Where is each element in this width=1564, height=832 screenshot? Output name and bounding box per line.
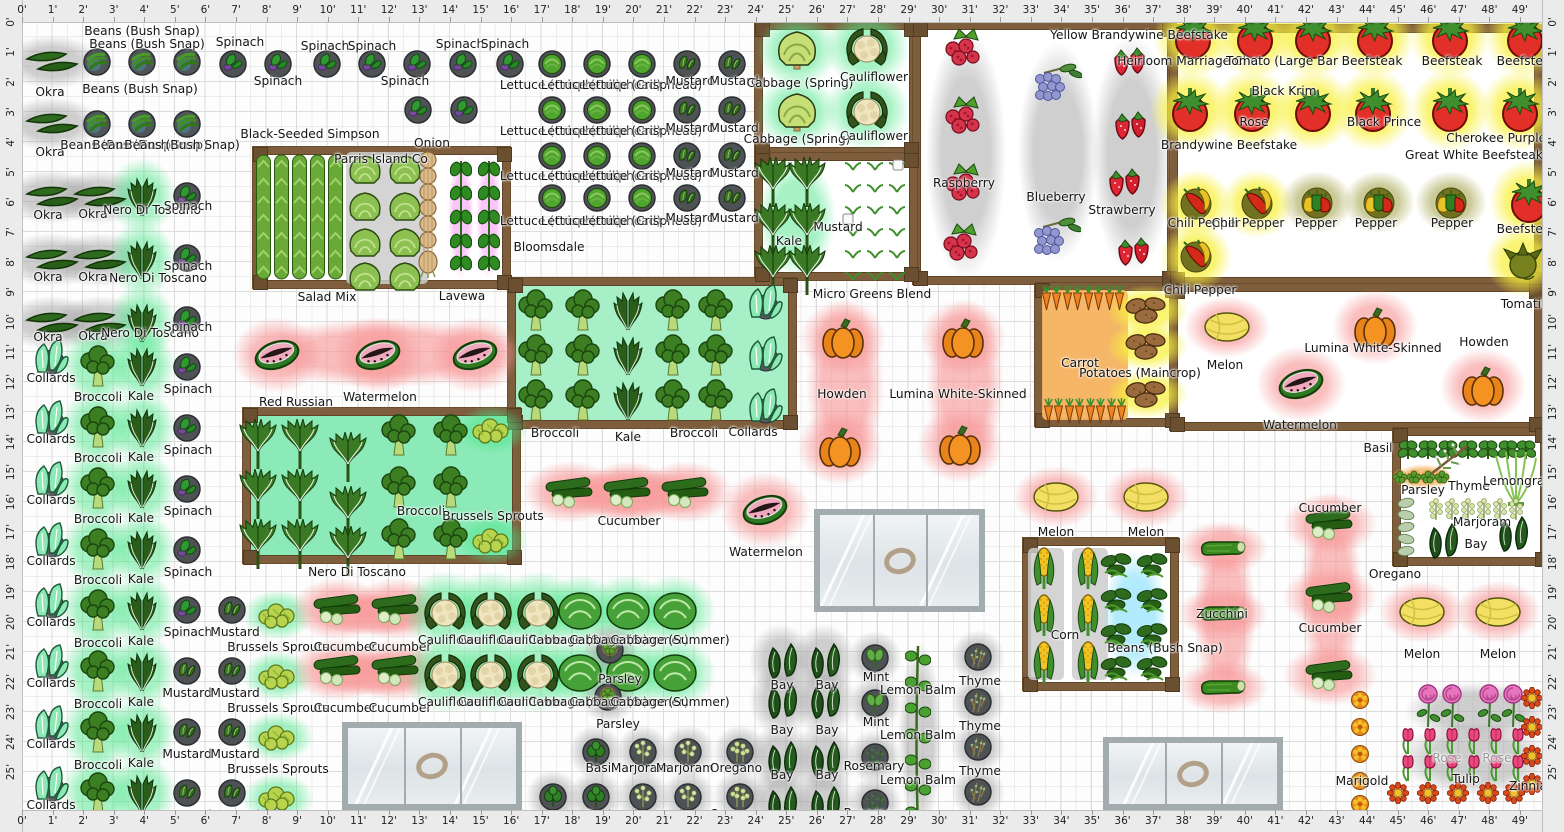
cold-frame[interactable] xyxy=(814,509,985,612)
ruler-bottom-label: 38' xyxy=(1176,815,1192,827)
pixkale-icon[interactable] xyxy=(326,432,370,484)
pixkale-icon[interactable] xyxy=(278,469,322,521)
carrot-icon[interactable] xyxy=(1095,398,1106,424)
broccoli-icon[interactable] xyxy=(652,378,692,422)
collards-icon[interactable] xyxy=(744,331,784,373)
ruler-left-label: 25' xyxy=(5,764,17,780)
beanplant-icon[interactable] xyxy=(1135,654,1169,682)
broccoli-icon[interactable] xyxy=(378,465,418,509)
plant-label: Bay xyxy=(770,678,793,692)
plant-label: Chili Pepper xyxy=(1164,283,1237,297)
plant-label: Spinach xyxy=(164,320,212,334)
cauliflower-icon[interactable] xyxy=(514,589,562,633)
pepper-icon[interactable] xyxy=(1359,185,1399,219)
kalev-icon[interactable] xyxy=(123,589,161,631)
zinnia-icon[interactable] xyxy=(1417,782,1439,804)
brussels-icon[interactable] xyxy=(472,526,512,554)
romaine-icon[interactable] xyxy=(347,261,383,293)
cucpair-icon[interactable] xyxy=(370,592,422,626)
cabbageSum-icon[interactable] xyxy=(605,591,651,631)
ruler-left-label: 14' xyxy=(5,434,17,450)
lettuce-icon[interactable] xyxy=(537,183,567,213)
plant-label: Thyme xyxy=(959,764,1001,778)
corn-icon[interactable] xyxy=(1075,639,1101,685)
marigold-icon[interactable] xyxy=(1350,690,1370,710)
pixkale-icon[interactable] xyxy=(236,419,280,471)
cold-frame[interactable] xyxy=(1103,737,1283,810)
broccoli-icon[interactable] xyxy=(77,588,117,632)
zinnia-icon[interactable] xyxy=(1521,745,1543,767)
romaine-icon[interactable] xyxy=(347,227,383,259)
cauliflower-icon[interactable] xyxy=(514,651,562,695)
kalev-icon[interactable] xyxy=(123,528,161,570)
ruler-bottom-label: 18' xyxy=(564,815,580,827)
plant-label: Cabbage (Summer) xyxy=(610,695,729,709)
brussels-icon[interactable] xyxy=(258,723,298,751)
ruler-bottom-label: 29' xyxy=(900,815,916,827)
plant-label: Cabbage (Summer) xyxy=(610,633,729,647)
lettuce-icon[interactable] xyxy=(537,141,567,171)
ruler-top-label: 18' xyxy=(564,4,580,16)
kalev-icon[interactable] xyxy=(609,289,647,331)
ruler-top-label: 26' xyxy=(809,4,825,16)
carrot-icon[interactable] xyxy=(1053,398,1064,424)
plant-label: Broccoli xyxy=(74,512,122,526)
collards-icon[interactable] xyxy=(30,456,70,498)
carrot-icon[interactable] xyxy=(1051,285,1062,311)
melon-icon[interactable] xyxy=(1203,310,1251,344)
pixkale-icon[interactable] xyxy=(236,469,280,521)
ruler-bottom-label: 24' xyxy=(748,815,764,827)
broccoli-icon[interactable] xyxy=(695,378,735,422)
pumpkin-icon[interactable] xyxy=(936,424,984,466)
broccoli-icon[interactable] xyxy=(562,288,602,332)
plant-label: Blueberry xyxy=(1026,190,1085,204)
kalev-icon[interactable] xyxy=(609,379,647,421)
spinach-icon[interactable] xyxy=(312,49,342,79)
cabbageSum-icon[interactable] xyxy=(557,591,603,631)
collards-icon[interactable] xyxy=(30,639,70,681)
spinach-icon[interactable] xyxy=(495,49,525,79)
ruler-bottom-label: 9' xyxy=(292,815,302,827)
thyme-icon[interactable] xyxy=(963,777,993,807)
plant-label: Melon xyxy=(1038,525,1075,539)
ruler-left-label: 12' xyxy=(5,374,17,390)
ruler-bottom-label: 27' xyxy=(839,815,855,827)
broccoli-icon[interactable] xyxy=(515,333,555,377)
plant-label: Watermelon xyxy=(729,545,803,559)
potato-icon[interactable] xyxy=(1124,380,1170,408)
watermelon-icon[interactable] xyxy=(740,489,790,531)
basil-icon[interactable] xyxy=(538,782,568,812)
potato-icon[interactable] xyxy=(1124,296,1170,324)
tomato-icon[interactable] xyxy=(1168,87,1212,133)
cucpair-icon[interactable] xyxy=(370,653,422,687)
spinach-icon[interactable] xyxy=(448,49,478,79)
mustard-icon[interactable] xyxy=(172,717,202,747)
ruler-top-label: 37' xyxy=(1145,4,1161,16)
beans-icon[interactable] xyxy=(127,109,157,139)
spinach-icon[interactable] xyxy=(172,413,202,443)
blueberry-icon[interactable] xyxy=(1030,57,1082,105)
brussels-icon[interactable] xyxy=(472,416,512,444)
cauliflower-icon[interactable] xyxy=(467,651,515,695)
ruler-top-label: 28' xyxy=(870,4,886,16)
ruler-top-label: 0' xyxy=(17,4,27,16)
romaine-icon[interactable] xyxy=(347,191,383,223)
plant-label: Kale xyxy=(128,634,154,648)
spinach-icon[interactable] xyxy=(218,49,248,79)
plant-label: Lemon Balm xyxy=(880,728,956,742)
watermelon-icon[interactable] xyxy=(1276,363,1326,405)
zucchini-icon[interactable] xyxy=(1198,672,1248,702)
ruler-bottom-label: 16' xyxy=(503,815,519,827)
cauliflower-icon[interactable] xyxy=(467,589,515,633)
broccoli-icon[interactable] xyxy=(430,517,470,561)
onioncol-icon[interactable] xyxy=(415,150,441,278)
broccoli-icon[interactable] xyxy=(77,771,117,815)
beans-icon[interactable] xyxy=(127,47,157,77)
watermelon-icon[interactable] xyxy=(252,334,302,376)
cabbageSp-icon[interactable] xyxy=(774,29,820,71)
broccoli-icon[interactable] xyxy=(77,466,117,510)
spincol-icon[interactable] xyxy=(478,157,500,275)
saladcol-icon[interactable] xyxy=(291,153,308,281)
pixkale-icon[interactable] xyxy=(278,519,322,571)
cucpair-icon[interactable] xyxy=(660,475,712,509)
melon-icon[interactable] xyxy=(1122,480,1170,514)
ruler-left-label: 23' xyxy=(5,704,17,720)
ruler-bottom-label: 17' xyxy=(534,815,550,827)
broccoli-icon[interactable] xyxy=(515,288,555,332)
plant-label: Cucumber xyxy=(314,640,377,654)
strawberry-icon[interactable] xyxy=(1113,236,1155,270)
beans-icon[interactable] xyxy=(82,47,112,77)
pixkale-icon[interactable] xyxy=(278,419,322,471)
spinach-icon[interactable] xyxy=(172,352,202,382)
bay-icon[interactable] xyxy=(763,640,799,680)
potato-icon[interactable] xyxy=(1124,332,1170,360)
plant-label: Thyme xyxy=(959,674,1001,688)
strawberry-icon[interactable] xyxy=(1104,167,1146,201)
mustard-icon[interactable] xyxy=(217,778,247,808)
marigold-icon[interactable] xyxy=(1350,744,1370,764)
kalev-icon[interactable] xyxy=(123,650,161,692)
broccoli-icon[interactable] xyxy=(77,649,117,693)
broccoli-icon[interactable] xyxy=(695,288,735,332)
ruler-top-label: 23' xyxy=(717,4,733,16)
beanplant-icon[interactable] xyxy=(1135,551,1169,579)
mustard-icon[interactable] xyxy=(717,183,747,213)
mustard-icon[interactable] xyxy=(172,778,202,808)
lettuce-icon[interactable] xyxy=(582,183,612,213)
pane-divider xyxy=(1165,743,1167,804)
pixkale-icon[interactable] xyxy=(236,519,280,571)
thyme-icon[interactable] xyxy=(963,687,993,717)
spinach-icon[interactable] xyxy=(172,474,202,504)
raspberry-icon[interactable] xyxy=(943,27,987,67)
zinnia-icon[interactable] xyxy=(1521,687,1543,709)
lettuce-icon[interactable] xyxy=(537,49,567,79)
mustard-icon[interactable] xyxy=(217,656,247,686)
broccoli-icon[interactable] xyxy=(378,517,418,561)
thymesprig-icon[interactable] xyxy=(1427,438,1473,478)
plant-label: Spinach xyxy=(164,259,212,273)
ruler-right-label: 11' xyxy=(1547,344,1559,360)
cauliflower-icon[interactable] xyxy=(421,589,469,633)
collards-icon[interactable] xyxy=(744,383,784,425)
carrot-icon[interactable] xyxy=(1093,285,1104,311)
tomato-icon[interactable] xyxy=(1498,87,1542,133)
broccoli-icon[interactable] xyxy=(77,527,117,571)
plant-label: Chili Pepper xyxy=(1212,216,1285,230)
spinach-icon[interactable] xyxy=(449,95,479,125)
plant-label: Oregano xyxy=(1369,567,1421,581)
strawberry-icon[interactable] xyxy=(1110,110,1152,144)
pumpkin-icon[interactable] xyxy=(1459,365,1507,407)
broccoli-icon[interactable] xyxy=(77,344,117,388)
tomatillo-icon[interactable] xyxy=(1502,241,1544,281)
collards-icon[interactable] xyxy=(30,700,70,742)
ruler-top-label: 31' xyxy=(962,4,978,16)
broccoli-icon[interactable] xyxy=(652,288,692,332)
plant-label: Lumina White-Skinned xyxy=(1304,341,1441,355)
mustard-icon[interactable] xyxy=(217,595,247,625)
ruler-right-label: 14' xyxy=(1547,434,1559,450)
cucpair-icon[interactable] xyxy=(1304,658,1356,692)
plant-label: Lemon Balm xyxy=(880,773,956,787)
collards-icon[interactable] xyxy=(30,517,70,559)
ruler-top-label: 15' xyxy=(472,4,488,16)
lettuce-icon[interactable] xyxy=(627,95,657,125)
broccoli-icon[interactable] xyxy=(378,413,418,457)
raspberry-icon[interactable] xyxy=(943,95,987,135)
cabbageSum-icon[interactable] xyxy=(652,653,698,693)
brussels-icon[interactable] xyxy=(258,601,298,629)
lettuce-icon[interactable] xyxy=(582,49,612,79)
ruler-top-label: 49' xyxy=(1512,4,1528,16)
ruler-bottom-label: 20' xyxy=(625,815,641,827)
okra-icon[interactable] xyxy=(24,47,80,77)
ruler-bottom-label: 47' xyxy=(1451,815,1467,827)
saladcol-icon[interactable] xyxy=(327,153,344,281)
ruler-left-label: 16' xyxy=(5,494,17,510)
ruler-bottom-label: 22' xyxy=(686,815,702,827)
collards-icon[interactable] xyxy=(30,578,70,620)
pane-divider xyxy=(873,515,875,606)
basilplant-icon[interactable] xyxy=(1398,437,1418,461)
saladcol-icon[interactable] xyxy=(273,153,290,281)
carrot-icon[interactable] xyxy=(1114,285,1125,311)
collards-icon[interactable] xyxy=(30,395,70,437)
ruler-left-label: 9' xyxy=(5,287,17,297)
beanplant-icon[interactable] xyxy=(1099,586,1133,614)
melon-icon[interactable] xyxy=(1474,595,1522,629)
pepper-icon[interactable] xyxy=(1431,185,1471,219)
ruler-bottom-label: 44' xyxy=(1359,815,1375,827)
cabbageSum-icon[interactable] xyxy=(652,591,698,631)
saladcol-icon[interactable] xyxy=(255,153,272,281)
pixkale-icon[interactable] xyxy=(785,157,829,209)
thyme-icon[interactable] xyxy=(963,732,993,762)
ruler-bottom-label: 3' xyxy=(109,815,119,827)
beanplant-icon[interactable] xyxy=(1099,654,1133,682)
chili-icon[interactable] xyxy=(1176,238,1216,276)
okra-icon[interactable] xyxy=(24,109,80,139)
ruler-bottom-label: 49' xyxy=(1512,815,1528,827)
ruler-right-label: 9' xyxy=(1547,287,1559,297)
lettuce-icon[interactable] xyxy=(582,95,612,125)
mustard-icon[interactable] xyxy=(672,183,702,213)
ruler-top-label: 33' xyxy=(1023,4,1039,16)
tomato-icon[interactable] xyxy=(1428,87,1472,133)
cauliflower-icon[interactable] xyxy=(421,651,469,695)
plant-label: Parris Island Co xyxy=(334,152,428,166)
lettuce-icon[interactable] xyxy=(537,95,567,125)
watermelon-icon[interactable] xyxy=(353,334,403,376)
pumpkin-icon[interactable] xyxy=(816,426,864,468)
ruler-left-label: 13' xyxy=(5,404,17,420)
corn-icon[interactable] xyxy=(1031,639,1057,685)
collards-icon[interactable] xyxy=(744,279,784,321)
ruler-bottom-label: 40' xyxy=(1237,815,1253,827)
mustard-icon[interactable] xyxy=(172,656,202,686)
raspberry-icon[interactable] xyxy=(941,222,985,262)
plant-label: Okra xyxy=(78,270,107,284)
cold-frame[interactable] xyxy=(342,722,522,810)
spinach-icon[interactable] xyxy=(172,535,202,565)
blueberry-icon[interactable] xyxy=(1029,211,1081,259)
lettuce-icon[interactable] xyxy=(627,49,657,79)
broccoli-icon[interactable] xyxy=(562,378,602,422)
pumpkin-icon[interactable] xyxy=(939,317,987,359)
plant-label: Spinach xyxy=(348,39,396,53)
ruler-top-label: 4' xyxy=(139,4,149,16)
ruler-right-label: 2' xyxy=(1547,77,1559,87)
melon-icon[interactable] xyxy=(1398,595,1446,629)
ruler-bottom-label: 0' xyxy=(17,815,27,827)
spinach-icon[interactable] xyxy=(172,595,202,625)
plant-label: Melon xyxy=(1128,525,1165,539)
carrot-icon[interactable] xyxy=(1072,285,1083,311)
ruler-bottom-label: 11' xyxy=(350,815,366,827)
kalev-icon[interactable] xyxy=(123,711,161,753)
kalev-icon[interactable] xyxy=(123,772,161,814)
broccoli-icon[interactable] xyxy=(77,710,117,754)
zinnia-icon[interactable] xyxy=(1387,782,1409,804)
plant-label: Mustard xyxy=(162,686,211,700)
brussels-icon[interactable] xyxy=(258,662,298,690)
rose-icon[interactable] xyxy=(1438,683,1466,727)
zinnia-icon[interactable] xyxy=(1477,782,1499,804)
brussels-icon[interactable] xyxy=(258,784,298,812)
spincol-icon[interactable] xyxy=(450,157,472,275)
ruler-bottom-label: 12' xyxy=(381,815,397,827)
mint-icon[interactable] xyxy=(860,643,890,673)
ruler-top-label: 12' xyxy=(381,4,397,16)
corn-icon[interactable] xyxy=(1031,545,1057,591)
plant-label: Okra xyxy=(35,85,64,99)
plant-label: Melon xyxy=(1480,647,1517,661)
plant-label: Mustard xyxy=(813,220,862,234)
saladcol-icon[interactable] xyxy=(309,153,326,281)
cucpair-icon[interactable] xyxy=(312,653,364,687)
ruler-top-label: 19' xyxy=(595,4,611,16)
spinach-icon[interactable] xyxy=(403,95,433,125)
ruler-left-label: 24' xyxy=(5,734,17,750)
ruler-top-label: 21' xyxy=(656,4,672,16)
ruler-top-label: 45' xyxy=(1390,4,1406,16)
beanplant-icon[interactable] xyxy=(1135,586,1169,614)
kalev-icon[interactable] xyxy=(123,406,161,448)
broccoli-icon[interactable] xyxy=(77,405,117,449)
marjsprig-icon[interactable] xyxy=(1428,498,1444,522)
carrot-icon[interactable] xyxy=(1074,398,1085,424)
broccoli-icon[interactable] xyxy=(430,413,470,457)
ruler-right-label: 7' xyxy=(1547,227,1559,237)
melon-icon[interactable] xyxy=(1032,480,1080,514)
mustard-icon[interactable] xyxy=(217,717,247,747)
cucpair-icon[interactable] xyxy=(544,475,596,509)
broccoli-icon[interactable] xyxy=(695,333,735,377)
beans-icon[interactable] xyxy=(82,109,112,139)
broccoli-icon[interactable] xyxy=(430,465,470,509)
plant-label: Cucumber xyxy=(1299,621,1362,635)
ruler-top-label: 42' xyxy=(1298,4,1314,16)
pepper-icon[interactable] xyxy=(1297,185,1337,219)
collards-icon[interactable] xyxy=(30,761,70,803)
pumpkin-icon[interactable] xyxy=(819,317,867,359)
pane-divider xyxy=(404,728,406,804)
ruler-top-label: 9' xyxy=(292,4,302,16)
broccoli-icon[interactable] xyxy=(652,333,692,377)
lettuce-icon[interactable] xyxy=(627,141,657,171)
lettuce-icon[interactable] xyxy=(627,183,657,213)
ruler-bottom-label: 28' xyxy=(870,815,886,827)
beans-icon[interactable] xyxy=(172,47,202,77)
zucchini-icon[interactable] xyxy=(1198,533,1248,563)
plant-label: Oregano xyxy=(710,761,762,775)
cucpair-icon[interactable] xyxy=(1304,580,1356,614)
beanplant-icon[interactable] xyxy=(1099,551,1133,579)
kalev-icon[interactable] xyxy=(123,467,161,509)
kalev-icon[interactable] xyxy=(609,334,647,376)
plant-label: Spinach xyxy=(216,35,264,49)
cauliflower-icon[interactable] xyxy=(843,25,891,69)
sagecol-icon[interactable] xyxy=(1395,495,1417,557)
broccoli-icon[interactable] xyxy=(515,378,555,422)
broccoli-icon[interactable] xyxy=(562,333,602,377)
cucpair-icon[interactable] xyxy=(312,592,364,626)
ruler-right-label: 0' xyxy=(1547,17,1559,27)
plant-label: Spinach xyxy=(164,382,212,396)
bay-icon[interactable] xyxy=(806,640,842,680)
cucpair-icon[interactable] xyxy=(602,475,654,509)
corn-icon[interactable] xyxy=(1075,545,1101,591)
beans-icon[interactable] xyxy=(172,109,202,139)
zinnia-icon[interactable] xyxy=(1521,716,1543,738)
cabbageSp-icon[interactable] xyxy=(774,91,820,133)
watermelon-icon[interactable] xyxy=(450,334,500,376)
ruler-left-label: 10' xyxy=(5,314,17,330)
ruler-left-label: 21' xyxy=(5,644,17,660)
tulip-icon[interactable] xyxy=(1400,751,1416,783)
lettuce-icon[interactable] xyxy=(582,141,612,171)
marigold-icon[interactable] xyxy=(1350,717,1370,737)
cauliflower-icon[interactable] xyxy=(843,88,891,132)
kalev-icon[interactable] xyxy=(123,345,161,387)
thyme-icon[interactable] xyxy=(963,642,993,672)
